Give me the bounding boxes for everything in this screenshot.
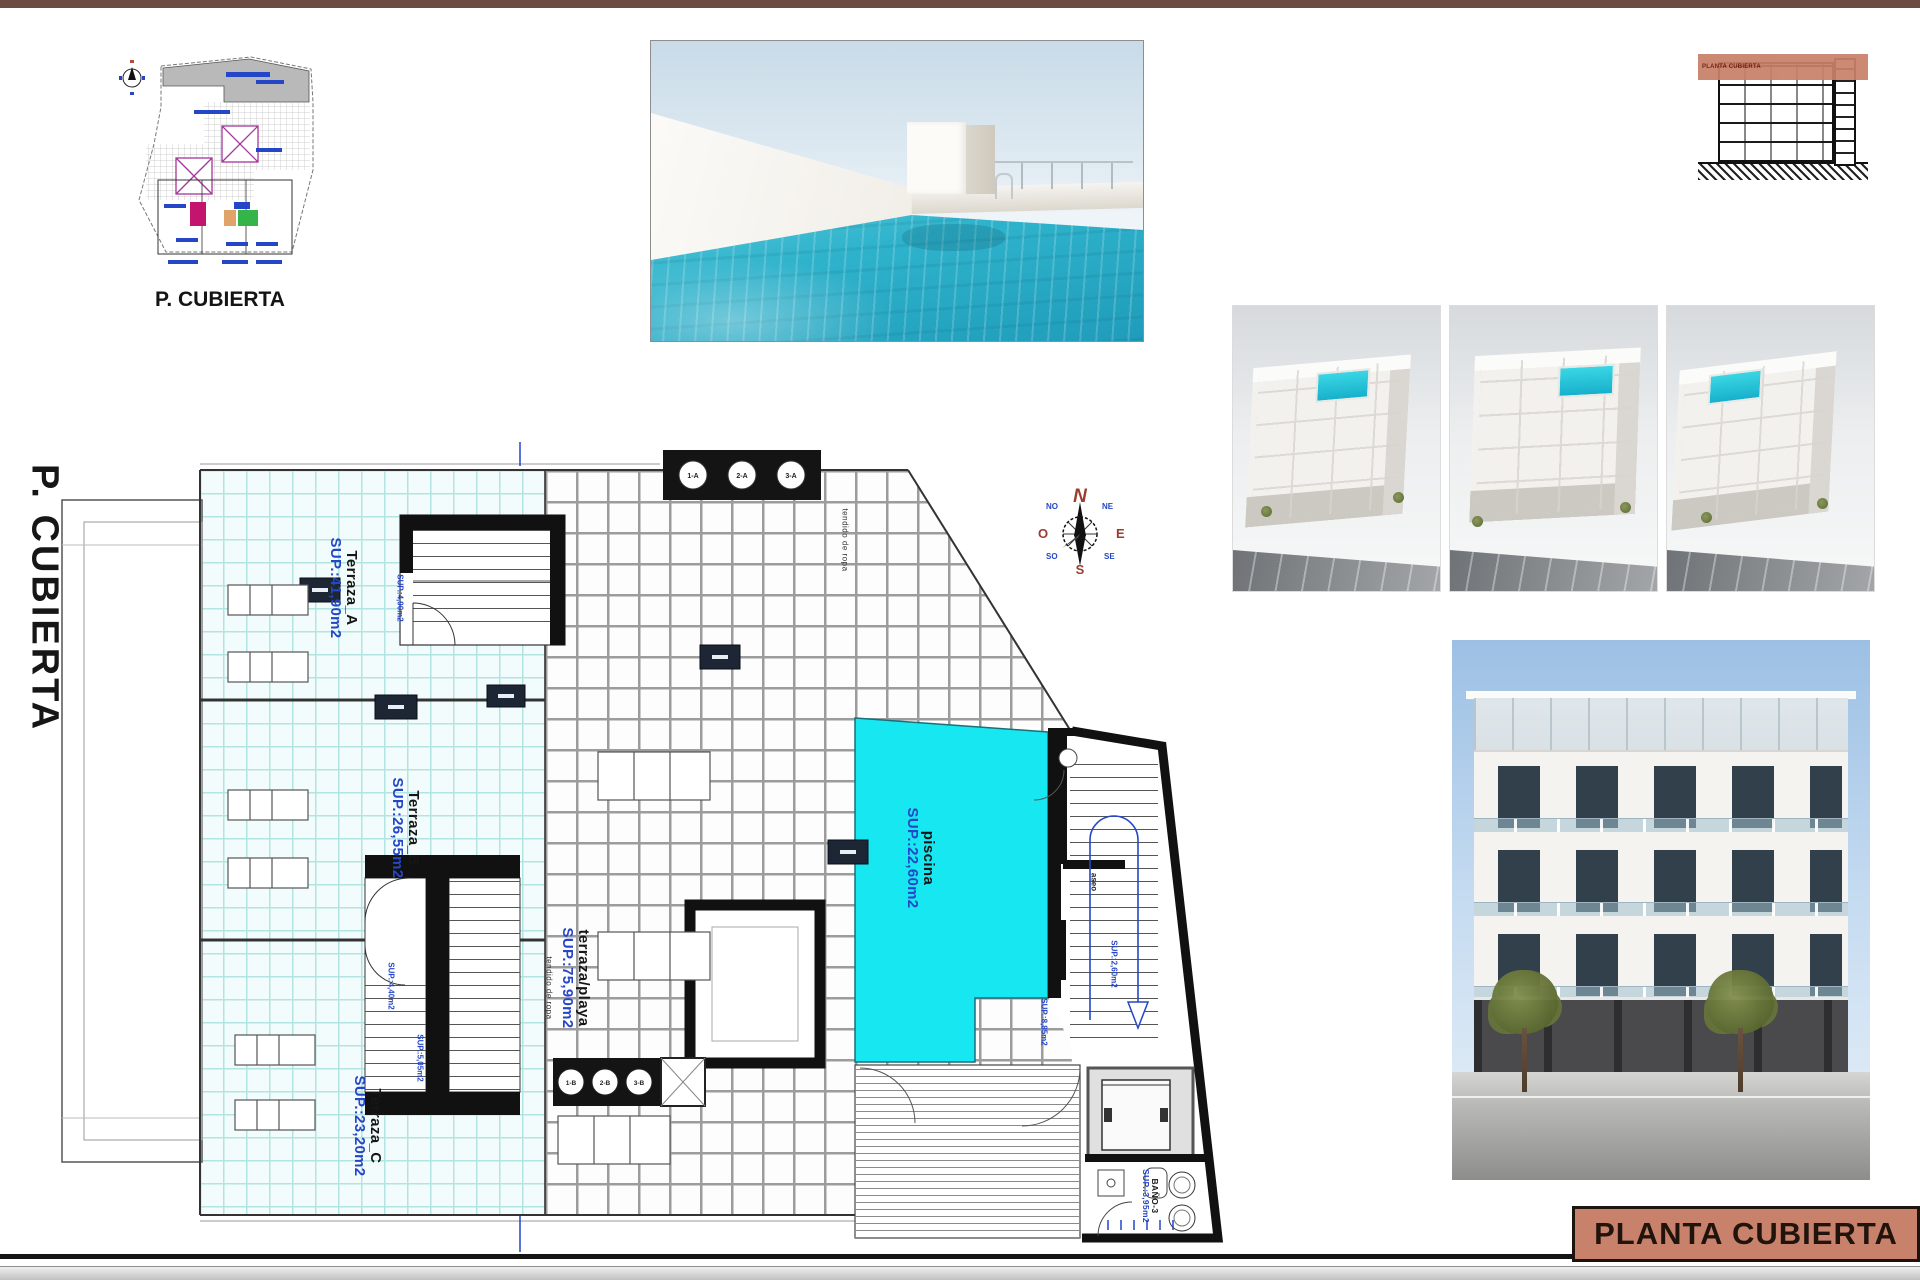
aerial-pool	[1315, 368, 1370, 403]
label-bano: BAÑO-3 SUP.:3,95m2	[1141, 1169, 1159, 1223]
color-block-magenta	[190, 202, 206, 226]
label-aseo: aseo	[1090, 873, 1099, 891]
mini-north-arrow	[119, 60, 145, 95]
compass-ne: NE	[1102, 502, 1113, 511]
label-terraza-playa: terraza/playa SUP.:75,90m2	[559, 928, 591, 1029]
rooftop-vents-bottom: 1-B 2-B 3-B	[553, 1058, 705, 1106]
section-highlight-band: PLANTA CUBIERTA	[1698, 54, 1868, 80]
render-cube-front	[907, 122, 966, 194]
aerial-building	[1671, 351, 1836, 530]
compass-n: N	[1073, 486, 1087, 508]
note-tendido-2: tendido de ropa	[545, 956, 554, 1019]
tree-trunk	[1522, 1028, 1527, 1092]
sink	[1098, 1170, 1124, 1196]
sup-stair-central-1: SUP.:4,40m2	[387, 962, 396, 1009]
aerial-render-2	[1449, 305, 1658, 592]
label-piscina: piscina SUP.:22,60m2	[904, 808, 936, 909]
sup-stair-central-2: SUP.:5,05m2	[416, 1034, 425, 1081]
street-tree	[1488, 970, 1562, 1092]
aerial-tree	[1701, 512, 1712, 523]
color-block-green	[238, 210, 258, 226]
svg-text:1-B: 1-B	[566, 1080, 577, 1087]
aerial-tree	[1261, 506, 1272, 517]
outdoor-shower	[1059, 749, 1077, 767]
tree-trunk	[1738, 1028, 1743, 1092]
svg-text:2-A: 2-A	[736, 473, 747, 480]
aerial-tree	[1620, 502, 1631, 513]
compass-se: SE	[1104, 552, 1115, 561]
sheet-title: PLANTA CUBIERTA	[1594, 1216, 1898, 1252]
aerial-tree	[1393, 492, 1404, 503]
aerial-tree	[1817, 498, 1828, 509]
north-compass: N S E O NE NO SE SO	[1038, 486, 1122, 578]
compass-s: S	[1076, 562, 1085, 577]
sup-stair-top: SUP.:4,90m2	[396, 574, 405, 621]
compass-e: E	[1116, 526, 1125, 541]
elevator-shaft	[1088, 1068, 1193, 1158]
aerial-pool	[1557, 364, 1615, 399]
label-terraza-a: Terraza_A SUP.:41,90m2	[327, 538, 359, 639]
facade-window-row	[1480, 766, 1842, 828]
section-label: PLANTA CUBIERTA	[1698, 64, 1761, 70]
facade-window-row	[1480, 850, 1842, 912]
svg-text:2-B: 2-B	[600, 1080, 611, 1087]
compass-nw: NO	[1046, 502, 1058, 511]
site-key-plan	[106, 52, 336, 292]
striped-paving	[855, 1065, 1080, 1238]
label-terraza-b: Terraza_B SUP.:26,55m2	[389, 778, 421, 879]
render-cube-side	[966, 125, 996, 194]
render-pool-ladder	[995, 173, 1013, 199]
aerial-building	[1469, 347, 1640, 522]
tree-canopy	[1492, 970, 1558, 1034]
street-tree	[1704, 970, 1778, 1092]
rooflight-shaft	[690, 905, 820, 1063]
siteplan-caption: P. CUBIERTA	[120, 288, 320, 312]
sup-aseo: SUP.:2,60m2	[1110, 940, 1119, 987]
aerial-tree	[1472, 516, 1483, 527]
drawing-sheet: PLANTA CUBIERTA P. CUBIERTA	[0, 0, 1920, 1280]
neighbour-roof-outline	[62, 500, 202, 1162]
color-block-orange	[224, 210, 236, 226]
svg-text:3-A: 3-A	[785, 473, 796, 480]
aerial-render-3	[1666, 305, 1875, 592]
svg-text:3-B: 3-B	[634, 1080, 645, 1087]
note-tendido-1: tendido de ropa	[841, 508, 850, 571]
tree-canopy	[1708, 970, 1774, 1034]
aerial-building	[1245, 354, 1411, 527]
plan-pool	[855, 718, 1061, 1062]
title-block: PLANTA CUBIERTA	[1572, 1206, 1920, 1262]
facade-roof-terrace	[1474, 698, 1848, 752]
aerial-render-1	[1232, 305, 1441, 592]
ac-units	[300, 578, 868, 864]
sheet-top-bar	[0, 0, 1920, 8]
building-section-key: PLANTA CUBIERTA	[1698, 42, 1868, 180]
sheet-bottom-bar	[0, 1266, 1920, 1280]
color-block-blue	[234, 202, 250, 209]
pool-photo-render	[650, 40, 1144, 342]
compass-w: O	[1038, 526, 1048, 541]
stair-top	[400, 515, 565, 645]
facade-render	[1452, 640, 1870, 1180]
sup-core: SUP.:8,85m2	[1040, 998, 1049, 1045]
render-water-glow	[651, 245, 922, 341]
machine	[1169, 1172, 1195, 1198]
rooftop-vents-top: 1-A 2-A 3-A	[663, 450, 821, 500]
svg-text:1-A: 1-A	[687, 473, 698, 480]
label-terraza-c: Terraza_C SUP.:23,20m2	[351, 1076, 383, 1177]
compass-sw: SO	[1046, 552, 1058, 561]
